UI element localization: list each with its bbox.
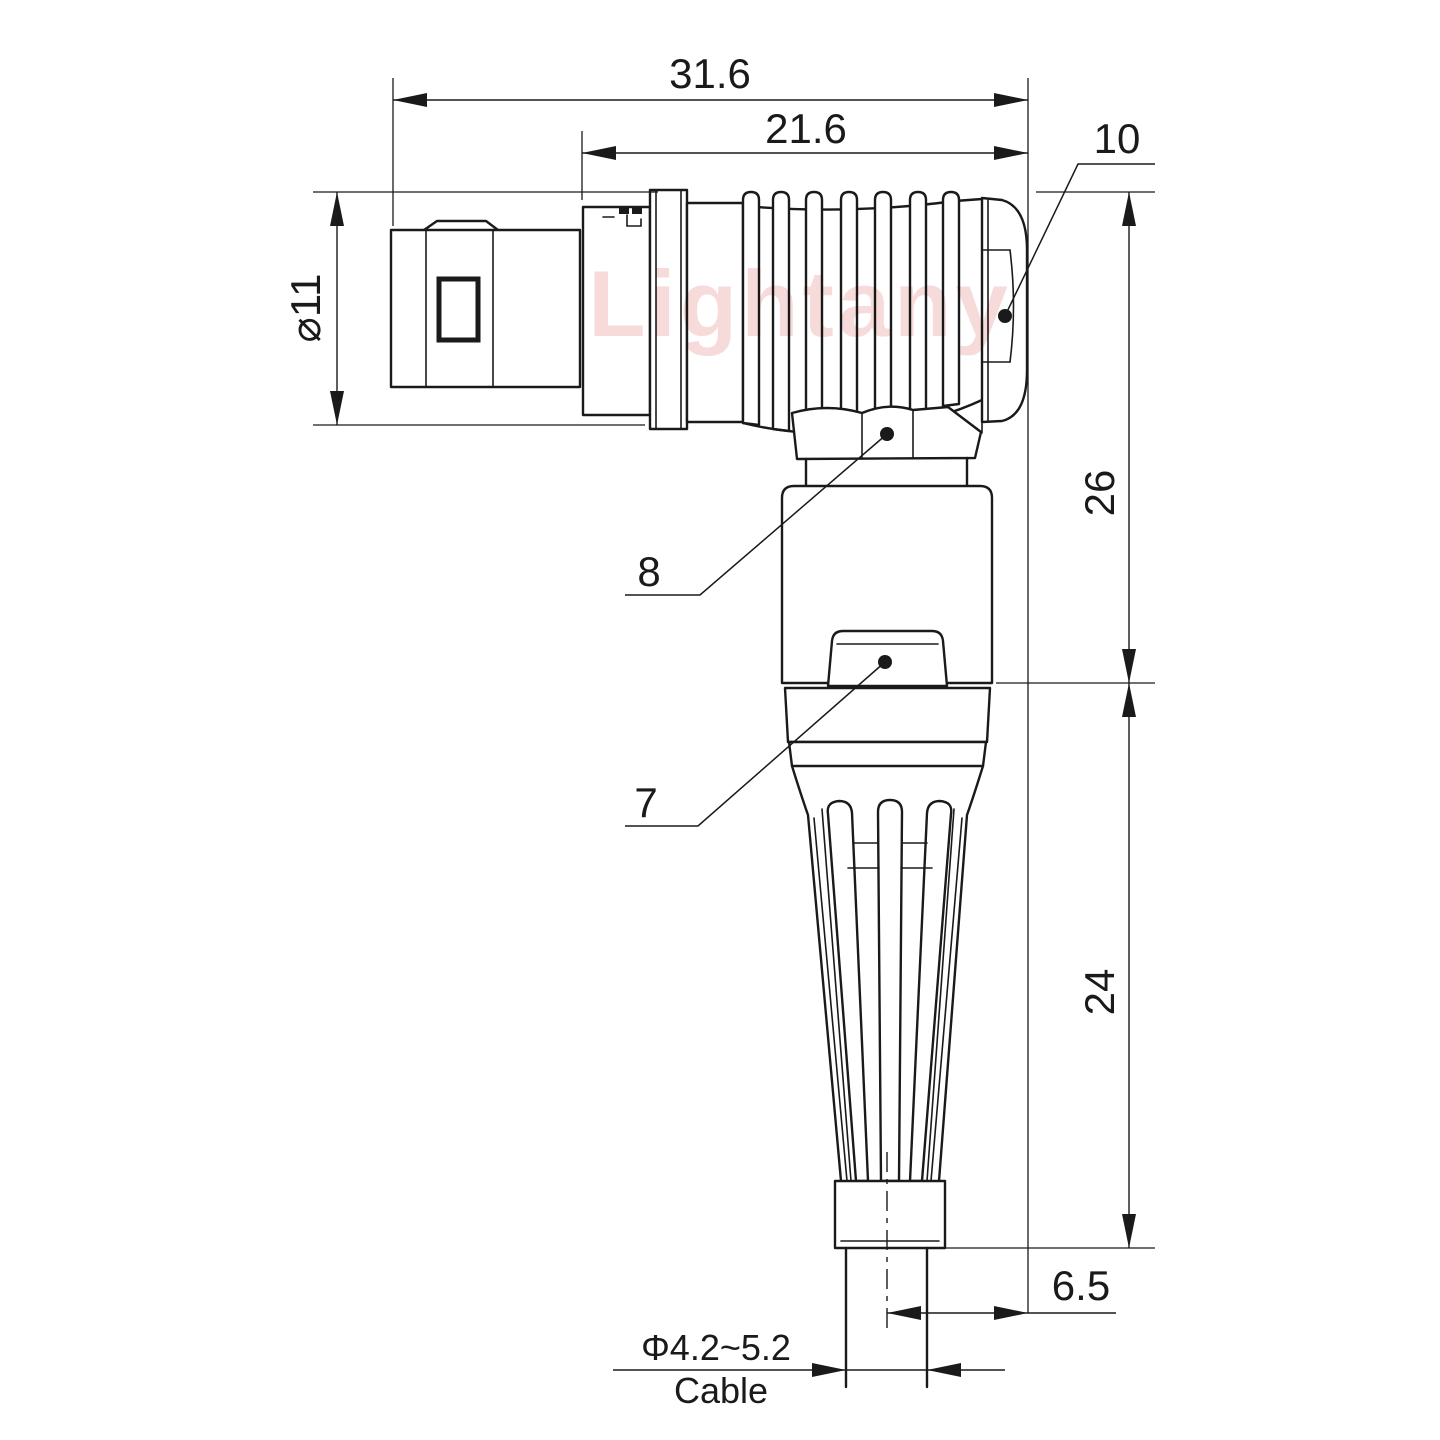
connector-side-view	[391, 190, 1027, 1387]
relief-collar	[785, 688, 990, 742]
cable-housing	[782, 458, 992, 686]
dim-text-lower: 24	[1076, 969, 1123, 1016]
relief-band	[789, 742, 986, 766]
dim-text-cable-diameter: Φ4.2~5.2	[641, 1327, 791, 1368]
arrow-left-icon	[887, 1306, 921, 1320]
relief-rib	[828, 801, 868, 1181]
arrow-right-icon	[812, 1363, 846, 1377]
dim-diameter: ⌀11	[282, 192, 344, 425]
front-barrel	[391, 221, 580, 387]
dim-text-diameter: ⌀11	[282, 274, 329, 343]
arrow-right-icon	[994, 1306, 1028, 1320]
connector-dimension-drawing: 31.6 21.6 ⌀11 26 24	[0, 0, 1440, 1440]
arrow-right-icon	[994, 146, 1028, 160]
barrel-body	[391, 230, 580, 387]
dim-text-offset: 6.5	[1052, 1262, 1110, 1309]
dim-text-body: 21.6	[765, 105, 847, 152]
arrow-down-icon	[330, 391, 344, 425]
barrel-top-bump	[424, 221, 498, 230]
arrow-right-icon	[994, 93, 1028, 107]
arrow-down-icon	[1122, 1214, 1136, 1248]
dim-text-upper: 26	[1076, 470, 1123, 517]
latch-window	[439, 279, 478, 340]
dim-overall-length: 31.6	[393, 50, 1028, 107]
dim-lower-height: 24	[1076, 683, 1136, 1248]
part-label-10: 10	[1094, 115, 1141, 162]
cable-sleeve	[835, 1152, 945, 1387]
arrow-up-icon	[1122, 192, 1136, 226]
technical-drawing-page: 31.6 21.6 ⌀11 26 24	[0, 0, 1440, 1440]
arrow-up-icon	[1122, 683, 1136, 717]
dim-cable-diameter: Φ4.2~5.2 Cable	[613, 1327, 1005, 1411]
part-label-8: 8	[637, 548, 660, 595]
dim-text-cable: Cable	[674, 1370, 768, 1411]
dim-text-overall: 31.6	[669, 50, 751, 97]
arrow-left-icon	[393, 93, 427, 107]
arrow-down-icon	[1122, 649, 1136, 683]
dim-rear-offset: 6.5	[887, 1262, 1116, 1320]
strain-relief	[785, 688, 990, 1181]
leader-dot	[880, 427, 894, 441]
sleeve-body	[835, 1181, 945, 1248]
key-mark-icon	[619, 208, 629, 214]
part-label-7: 7	[634, 779, 657, 826]
key-mark-icon	[632, 208, 642, 214]
dim-upper-height: 26	[1076, 192, 1136, 683]
arrow-up-icon	[330, 192, 344, 226]
relief-rib	[878, 800, 902, 1181]
arrow-left-icon	[927, 1363, 961, 1377]
watermark-text: Lightany	[588, 251, 1012, 356]
leader-dot	[878, 655, 892, 669]
dim-body-length: 21.6	[582, 105, 1028, 160]
arrow-left-icon	[582, 146, 616, 160]
